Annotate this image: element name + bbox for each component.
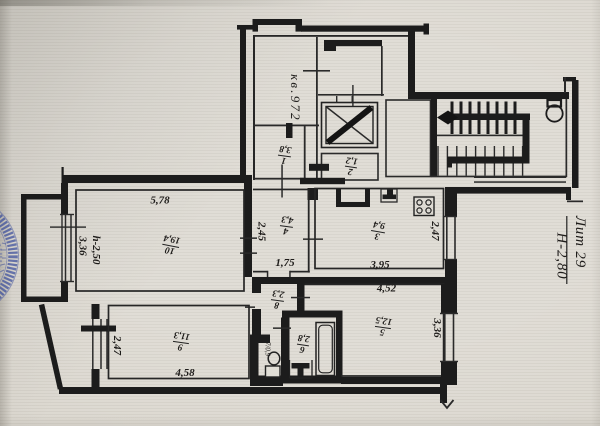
svg-text:3,8: 3,8 <box>279 143 293 155</box>
svg-text:h-2,50: h-2,50 <box>90 235 102 265</box>
svg-text:Н-2,80: Н-2,80 <box>554 232 570 280</box>
svg-text:3,36: 3,36 <box>431 317 443 338</box>
svg-text:2,47: 2,47 <box>111 335 123 356</box>
svg-text:2,8: 2,8 <box>297 332 311 344</box>
svg-text:кв.972: кв.972 <box>288 74 303 122</box>
svg-text:12,5: 12,5 <box>375 314 393 326</box>
svg-text:7/0,9: 7/0,9 <box>263 342 271 357</box>
svg-text:Лит 29: Лит 29 <box>572 215 588 268</box>
svg-text:9,4: 9,4 <box>372 218 386 230</box>
svg-text:19,4: 19,4 <box>163 232 181 245</box>
svg-text:3,36: 3,36 <box>76 235 88 256</box>
svg-text:5,78: 5,78 <box>150 195 170 207</box>
svg-text:4,3: 4,3 <box>281 213 295 225</box>
svg-text:4,58: 4,58 <box>174 367 195 379</box>
svg-text:1,75: 1,75 <box>275 257 295 269</box>
svg-text:2,3: 2,3 <box>272 287 286 299</box>
svg-text:4,52: 4,52 <box>376 283 397 295</box>
svg-text:3,95: 3,95 <box>369 259 390 271</box>
svg-text:2,45: 2,45 <box>255 221 267 242</box>
svg-text:1,2: 1,2 <box>345 154 358 166</box>
svg-text:2,47: 2,47 <box>429 220 441 241</box>
svg-text:11,3: 11,3 <box>173 329 191 341</box>
